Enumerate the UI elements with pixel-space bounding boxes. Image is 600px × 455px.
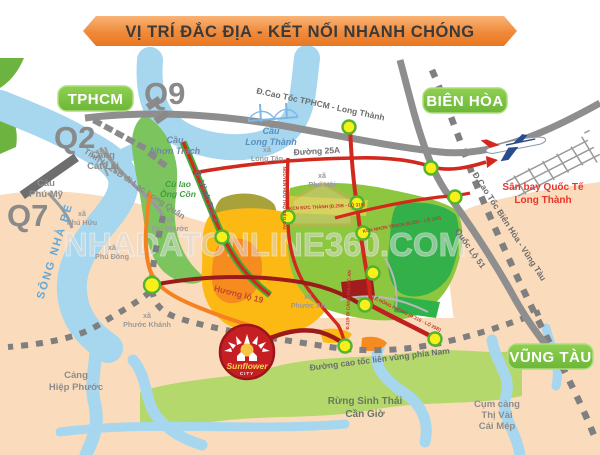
commune-long-tan-2: Long Tân [251,154,283,163]
place-cau-long-thanh-2: Long Thành [245,137,297,147]
logo-suffix: CITY [240,371,254,376]
place-cang-hiep-phuoc-2: Hiệp Phước [49,382,103,393]
zone-label-4: NGUYỄN HỮU THỌ KÉO DÀI [282,167,289,230]
commune-phuoc-khanh-1: xã [143,311,152,320]
location-map: NHADATONLINE360.COM [0,0,600,455]
place-san-bay-2: Long Thành [514,195,571,206]
commune-phuoc-an-1: xã [304,292,313,301]
pill-vung-tau: VŨNG TÀU [508,344,593,369]
road-25a-arrowhead [486,156,498,168]
logo-name: Sunflower [226,361,268,371]
place-cu-lao-ong-con-2: Ông Cồn [160,188,196,199]
route-badge-q2: Q2 [54,120,95,155]
place-cang-cat-lai-2: Cát Lái [87,161,119,172]
commune-dai-phuoc-1: xã [166,215,175,224]
place-rung-sinh-thai-2: Cần Giờ [345,408,385,420]
commune-long-tan-1: xã [263,145,272,154]
place-san-bay-1: Sân bay Quốc Tế [502,181,584,193]
page-title: VỊ TRÍ ĐẮC ĐỊA - KẾT NỐI NHANH CHÓNG [125,21,474,41]
label-bien-hoa: BIÊN HÒA [426,92,503,110]
commune-phuoc-khanh-2: Phước Khánh [123,320,171,329]
commune-phuoc-an-2: Phước An [291,301,326,310]
route-badge-q9: Q9 [144,76,185,111]
commune-phu-dong-2: Phú Đông [95,252,129,261]
commune-phu-huu-1: xã [78,209,87,218]
pill-bien-hoa: BIÊN HÒA [423,88,507,113]
road-label-vanh-dai-3: Đ. Vành Đai 3 [193,169,221,224]
place-rung-sinh-thai-1: Rừng Sinh Thái [328,396,403,407]
commune-phu-hoi-1: xã [318,171,327,180]
route-badge-q7: Q7 [7,198,48,233]
title-ribbon: VỊ TRÍ ĐẮC ĐỊA - KẾT NỐI NHANH CHÓNG [83,16,517,46]
green-corner-topleft [0,58,24,88]
pill-tphcm: TPHCM [58,86,133,111]
place-cum-cang-1: Cụm cảng [474,399,520,410]
place-cau-long-thanh-1: Cầu [262,126,280,136]
place-cum-cang-3: Cái Mép [479,421,516,432]
place-cau-nhon-trach-2: Nhơn Trạch [150,146,201,156]
place-cum-cang-2: Thị Vải [481,410,512,421]
sunflower-city-logo: Sunflower CITY [220,325,274,379]
label-tphcm: TPHCM [68,91,124,108]
place-cang-hiep-phuoc-1: Cảng [64,370,88,381]
label-vung-tau: VŨNG TÀU [509,348,591,366]
place-cau-nhon-trach-1: Cầu [166,135,184,145]
commune-phu-dong-1: xã [108,243,117,252]
commune-phu-huu-2: Phú Hữu [67,218,97,227]
commune-phu-hoi-2: Phú Hội [308,180,335,189]
place-cau-phu-my-1: Cầu [37,178,55,189]
road-label-duong-25a: Đường 25A [293,145,340,157]
commune-dai-phuoc-2: Đại Phước [152,224,189,233]
place-cu-lao-ong-con-1: Cù lao [165,179,191,189]
